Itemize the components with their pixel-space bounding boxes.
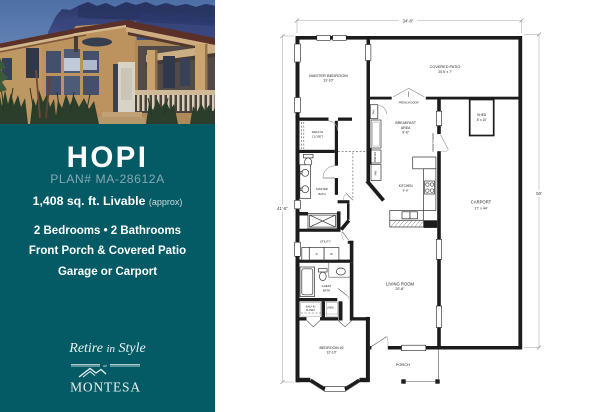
svg-text:17' x 44': 17' x 44'	[474, 206, 487, 210]
svg-text:12'-10": 12'-10"	[326, 351, 337, 355]
svg-text:W: W	[330, 252, 333, 256]
svg-text:MASTER: MASTER	[316, 187, 328, 191]
svg-text:50': 50'	[536, 191, 542, 196]
svg-text:PAN: PAN	[373, 109, 376, 114]
svg-text:13'-10": 13'-10"	[323, 78, 334, 82]
svg-text:FRENCH DOOR: FRENCH DOOR	[399, 100, 419, 104]
svg-text:D: D	[316, 252, 318, 256]
svg-text:AREA: AREA	[401, 126, 411, 130]
svg-text:BREAKFAST: BREAKFAST	[395, 121, 416, 125]
svg-text:20.5' x 7': 20.5' x 7'	[438, 70, 452, 74]
svg-text:GUEST: GUEST	[322, 284, 332, 288]
svg-text:UTILITY: UTILITY	[320, 240, 331, 244]
svg-text:KITCHEN: KITCHEN	[399, 184, 414, 188]
svg-text:CLOSET: CLOSET	[306, 310, 316, 312]
svg-text:FRENCH DOOR: FRENCH DOOR	[432, 133, 435, 152]
svg-text:20'-8": 20'-8"	[395, 287, 405, 291]
svg-text:WALK-IN: WALK-IN	[306, 306, 316, 309]
svg-text:LIVING ROOM: LIVING ROOM	[386, 281, 414, 286]
svg-text:WALK-IN: WALK-IN	[312, 130, 324, 134]
svg-text:PAN: PAN	[374, 170, 377, 175]
svg-text:MASTER BEDROOM: MASTER BEDROOM	[309, 73, 347, 78]
svg-text:41'-6": 41'-6"	[277, 206, 288, 211]
svg-text:9'-0": 9'-0"	[403, 189, 409, 193]
svg-text:COVERED PATIO: COVERED PATIO	[430, 65, 461, 69]
svg-text:BEDROOM #2: BEDROOM #2	[320, 346, 344, 350]
svg-text:8' x 10': 8' x 10'	[477, 118, 487, 122]
svg-text:9'-6": 9'-6"	[402, 130, 410, 134]
svg-text:SHELVES: SHELVES	[375, 151, 377, 162]
svg-text:PORCH: PORCH	[396, 362, 411, 367]
svg-text:34'-8": 34'-8"	[403, 18, 414, 23]
svg-text:BATH: BATH	[318, 192, 325, 196]
svg-text:BATH: BATH	[323, 289, 330, 293]
svg-text:LINEN: LINEN	[327, 308, 334, 310]
svg-text:SHED: SHED	[477, 113, 487, 117]
svg-text:CARPORT: CARPORT	[471, 200, 492, 205]
svg-text:CLOSET: CLOSET	[312, 134, 323, 138]
